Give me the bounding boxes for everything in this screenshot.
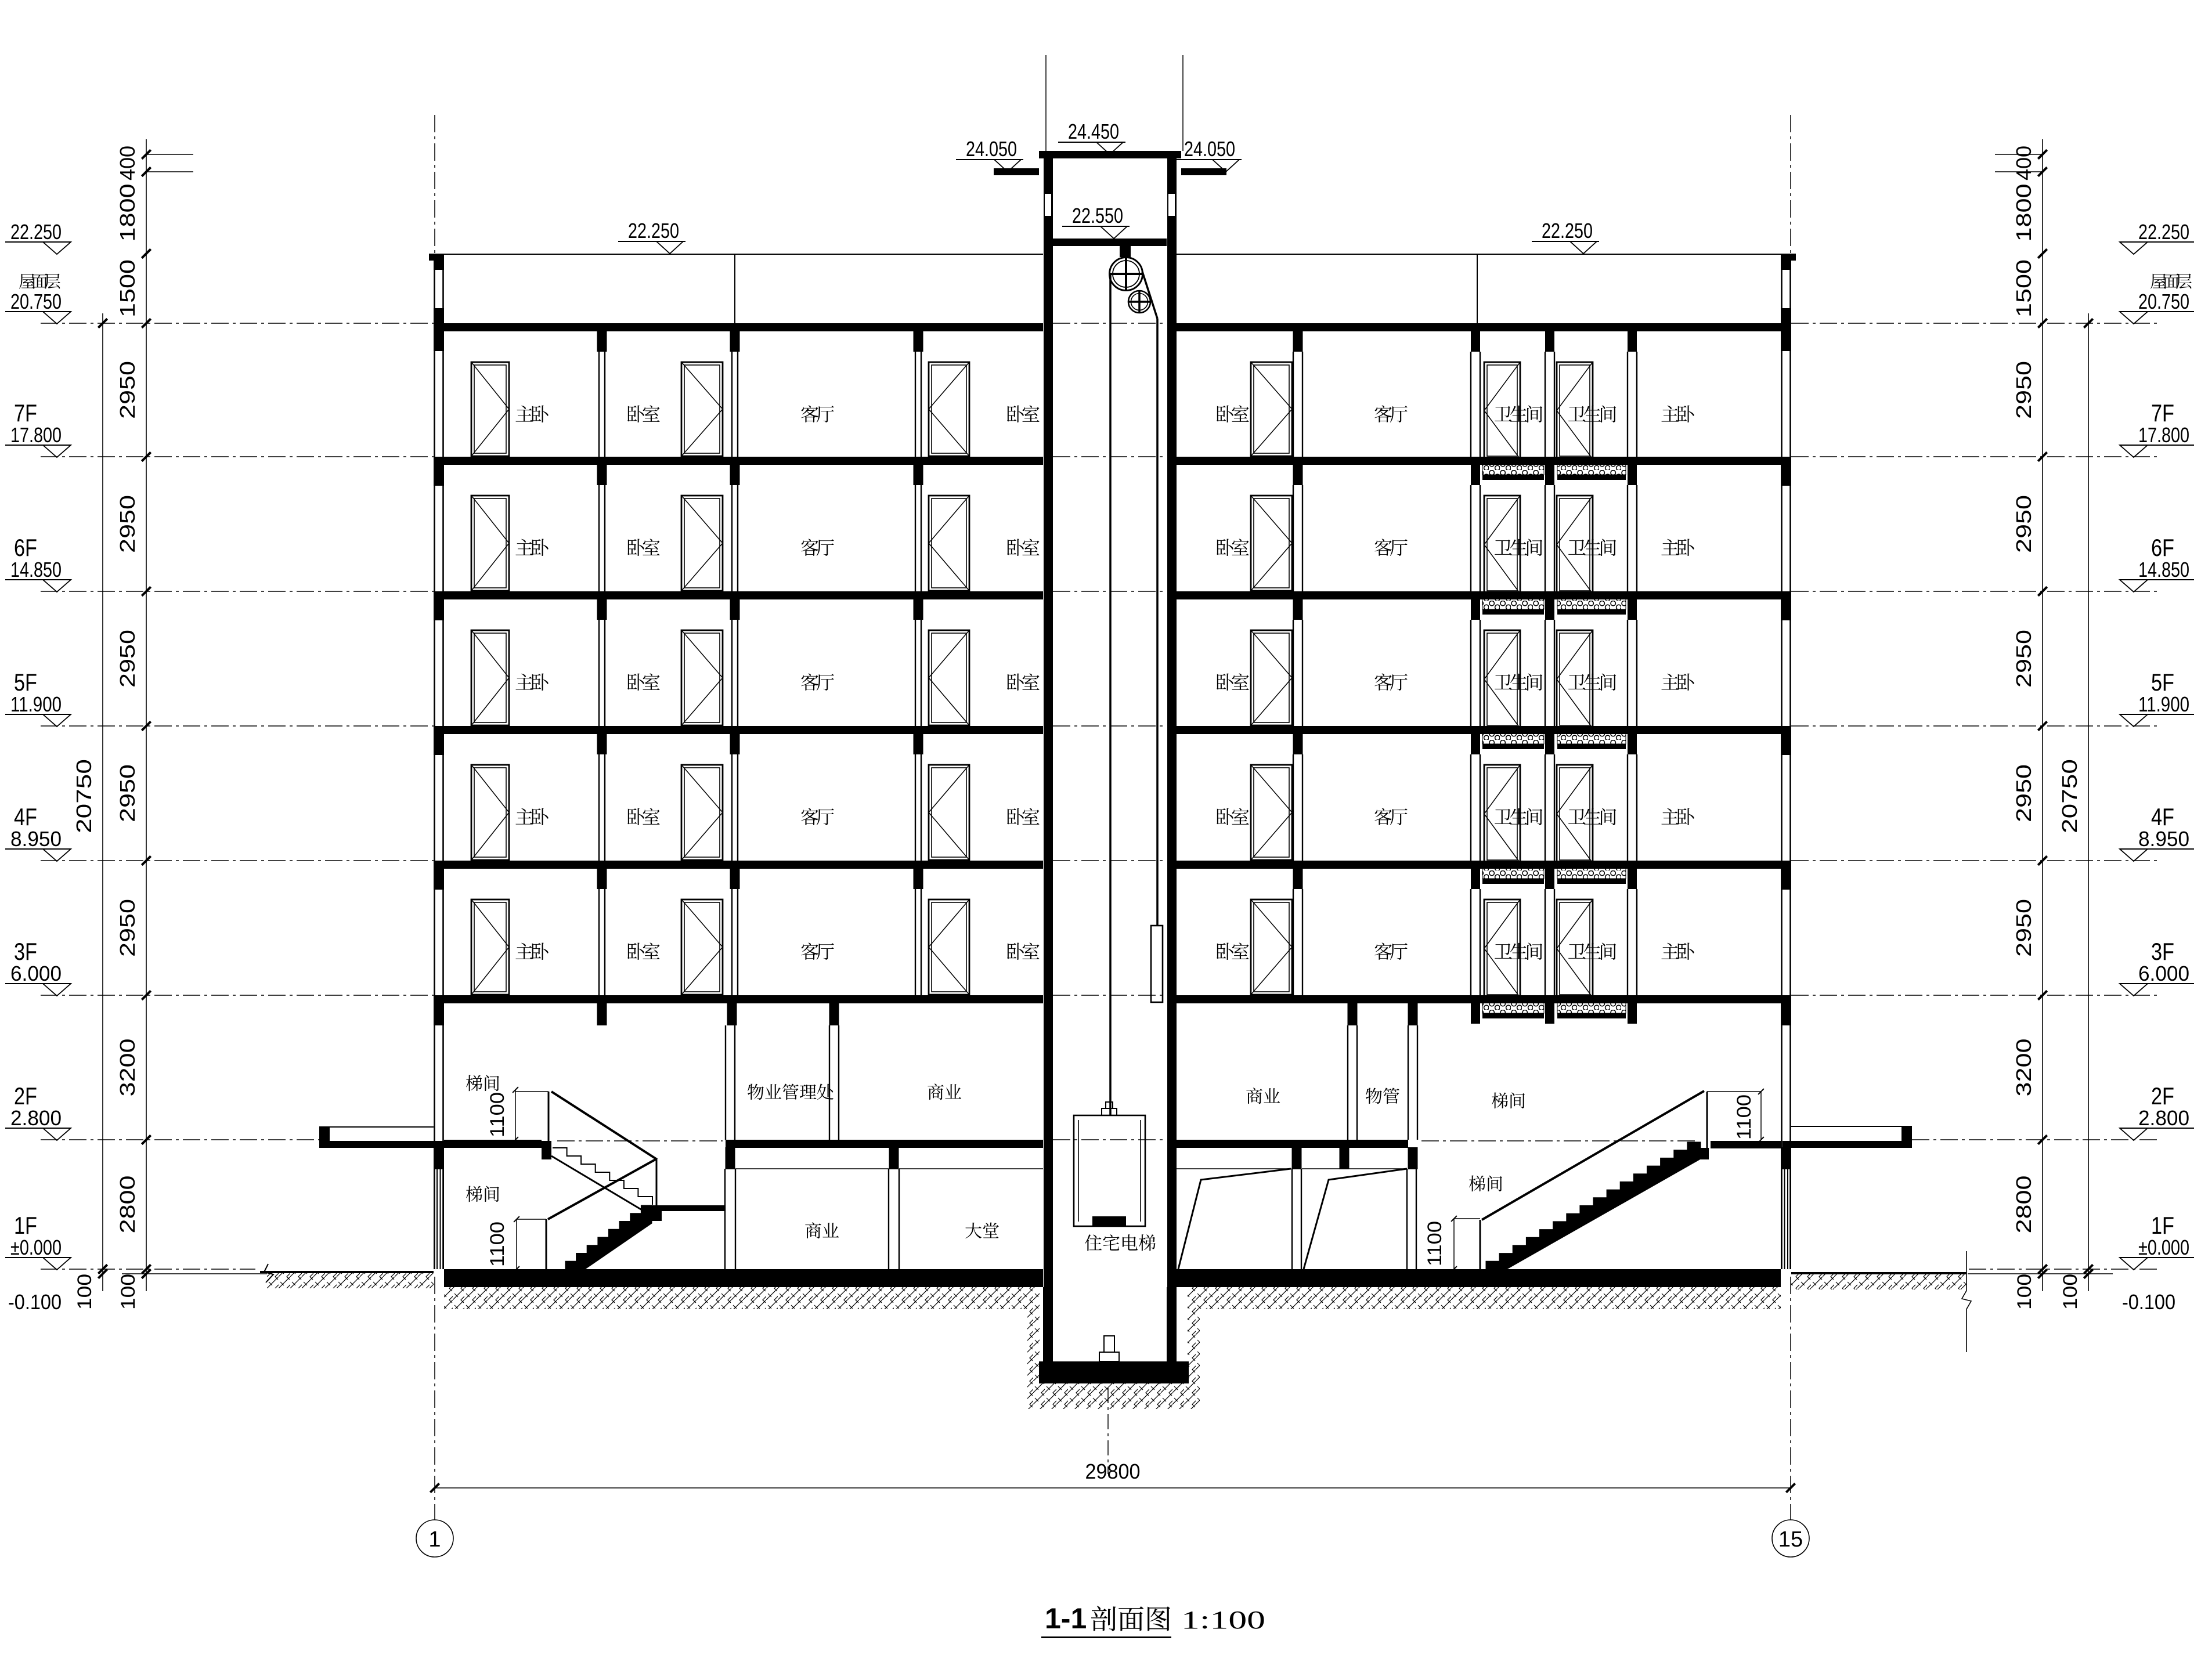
svg-text:14.850: 14.850 — [10, 558, 62, 581]
svg-text:2.800: 2.800 — [2138, 1106, 2189, 1130]
svg-text:1800: 1800 — [2012, 184, 2036, 242]
svg-text:17.800: 17.800 — [10, 423, 62, 447]
svg-text:100: 100 — [117, 1274, 139, 1310]
svg-text:4F: 4F — [2151, 803, 2174, 830]
svg-text:2950: 2950 — [116, 764, 139, 822]
svg-text:1100: 1100 — [1733, 1094, 1755, 1140]
svg-text:3200: 3200 — [116, 1039, 139, 1097]
svg-text:6.000: 6.000 — [10, 962, 62, 985]
svg-text:2950: 2950 — [116, 630, 139, 688]
svg-text:22.550: 22.550 — [1072, 204, 1123, 227]
svg-text:1:100: 1:100 — [1181, 1606, 1265, 1634]
svg-text:6F: 6F — [14, 534, 37, 561]
svg-text:11.900: 11.900 — [10, 692, 62, 716]
svg-text:2800: 2800 — [2012, 1176, 2036, 1234]
svg-text:17.800: 17.800 — [2138, 423, 2189, 447]
svg-text:2.800: 2.800 — [10, 1106, 62, 1130]
svg-text:1500: 1500 — [116, 259, 139, 317]
svg-text:100: 100 — [74, 1274, 96, 1310]
svg-text:7F: 7F — [2151, 399, 2174, 427]
svg-text:6.000: 6.000 — [2138, 962, 2189, 985]
svg-text:2950: 2950 — [116, 899, 139, 957]
svg-text:1500: 1500 — [2012, 259, 2036, 317]
svg-text:8.950: 8.950 — [2138, 827, 2189, 851]
svg-text:3F: 3F — [2151, 938, 2174, 965]
svg-text:5F: 5F — [2151, 669, 2174, 696]
svg-text:1F: 1F — [2151, 1212, 2174, 1239]
svg-text:1F: 1F — [14, 1212, 37, 1239]
svg-text:2800: 2800 — [116, 1176, 139, 1234]
svg-text:3F: 3F — [14, 938, 37, 965]
svg-text:±0.000: ±0.000 — [10, 1235, 62, 1259]
svg-text:20.750: 20.750 — [10, 290, 62, 313]
svg-text:400: 400 — [116, 146, 139, 180]
svg-text:2F: 2F — [2151, 1082, 2174, 1110]
svg-text:22.250: 22.250 — [10, 220, 62, 244]
svg-text:4F: 4F — [14, 803, 37, 830]
svg-text:14.850: 14.850 — [2138, 558, 2189, 581]
svg-text:1-1: 1-1 — [1045, 1602, 1087, 1635]
svg-text:20750: 20750 — [72, 759, 96, 833]
svg-text:11.900: 11.900 — [2138, 692, 2189, 716]
svg-text:2950: 2950 — [2012, 630, 2036, 688]
svg-text:2950: 2950 — [2012, 899, 2036, 957]
svg-text:-0.100: -0.100 — [8, 1290, 62, 1314]
svg-text:2950: 2950 — [2012, 361, 2036, 419]
svg-text:100: 100 — [2059, 1274, 2081, 1310]
svg-text:1: 1 — [428, 1527, 441, 1552]
svg-text:24.450: 24.450 — [1068, 120, 1119, 143]
svg-text:29800: 29800 — [1085, 1459, 1141, 1483]
svg-text:2950: 2950 — [116, 495, 139, 553]
svg-text:22.250: 22.250 — [1542, 219, 1593, 243]
svg-text:15: 15 — [1778, 1527, 1803, 1552]
svg-text:20.750: 20.750 — [2138, 290, 2189, 313]
svg-text:22.250: 22.250 — [2138, 220, 2189, 244]
svg-text:-0.100: -0.100 — [2122, 1290, 2175, 1314]
svg-text:1100: 1100 — [1424, 1221, 1446, 1266]
svg-text:7F: 7F — [14, 399, 37, 427]
svg-text:1100: 1100 — [486, 1222, 508, 1267]
svg-text:20750: 20750 — [2058, 759, 2081, 833]
svg-text:1100: 1100 — [486, 1092, 508, 1137]
svg-text:2950: 2950 — [2012, 764, 2036, 822]
svg-text:2950: 2950 — [116, 361, 139, 419]
svg-text:1800: 1800 — [116, 184, 139, 242]
svg-text:5F: 5F — [14, 669, 37, 696]
svg-text:22.250: 22.250 — [628, 219, 679, 243]
svg-text:6F: 6F — [2151, 534, 2174, 561]
svg-text:3200: 3200 — [2012, 1039, 2036, 1097]
svg-text:8.950: 8.950 — [10, 827, 62, 851]
svg-text:400: 400 — [2012, 146, 2036, 180]
svg-text:100: 100 — [2014, 1274, 2036, 1310]
svg-text:±0.000: ±0.000 — [2138, 1235, 2189, 1259]
svg-text:24.050: 24.050 — [966, 137, 1017, 161]
svg-text:24.050: 24.050 — [1184, 137, 1235, 161]
svg-text:2F: 2F — [14, 1082, 37, 1110]
svg-text:2950: 2950 — [2012, 495, 2036, 553]
